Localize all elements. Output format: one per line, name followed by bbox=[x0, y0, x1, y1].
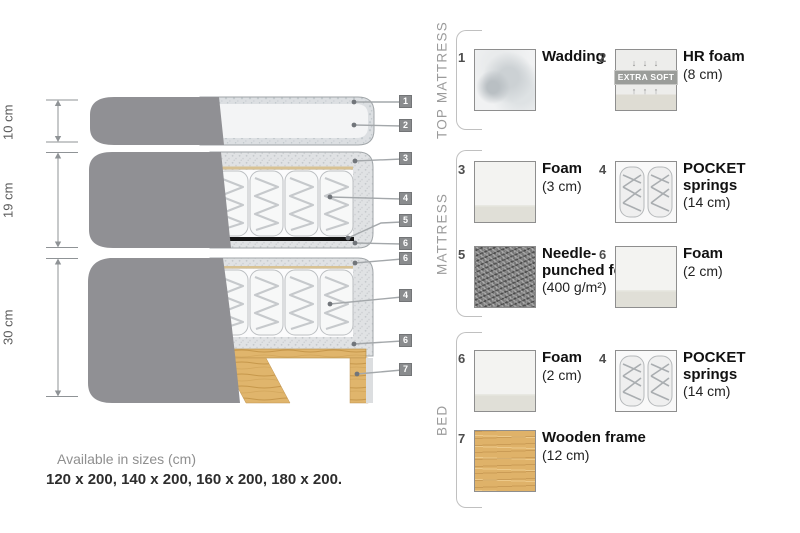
layer-tag-6b: 6 bbox=[399, 252, 412, 265]
legend-item-pocket-springs-bed: 4 POCKET springs (14 cm) bbox=[599, 350, 787, 412]
extra-soft-badge: EXTRA SOFT bbox=[614, 70, 679, 85]
available-sizes-list: 120 x 200, 140 x 200, 160 x 200, 180 x 2… bbox=[46, 471, 342, 488]
group-label-bed: BED bbox=[433, 332, 451, 508]
mattress-section bbox=[89, 152, 373, 248]
foam-swatch bbox=[474, 350, 536, 412]
pocket-springs-swatch bbox=[615, 350, 677, 412]
legend-item-name: HR foam bbox=[683, 49, 787, 66]
legend-item-size: (12 cm) bbox=[542, 448, 662, 463]
layer-tag-1: 1 bbox=[399, 95, 412, 108]
group-label-mattress: MATTRESS bbox=[433, 150, 451, 317]
legend-item-number: 5 bbox=[458, 246, 474, 262]
foam-swatch bbox=[615, 246, 677, 308]
legend-item-number: 4 bbox=[599, 350, 615, 366]
legend-item-name: POCKET springs bbox=[683, 161, 787, 194]
legend-item-name: Foam bbox=[683, 246, 787, 263]
top-mattress-section bbox=[90, 97, 374, 145]
arrows-down-icon: ↓ ↓ ↓ bbox=[632, 58, 661, 69]
bed-construction-infographic: 10 cm 19 cm 30 cm 1 2 3 4 5 6 6 4 6 7 Av… bbox=[0, 0, 800, 533]
legend-item-size: (2 cm) bbox=[683, 264, 787, 279]
bed-base-section bbox=[88, 258, 373, 403]
legend-item-number: 3 bbox=[458, 161, 474, 177]
dimension-label-10cm: 10 cm bbox=[0, 99, 16, 145]
legend-item-hr-foam: 2 ↓ ↓ ↓ EXTRA SOFT ↑ ↑ ↑ HR foam (8 cm) bbox=[599, 49, 787, 111]
layer-tag-4b: 4 bbox=[399, 289, 412, 302]
legend-item-number: 4 bbox=[599, 161, 615, 177]
legend-item-size: (14 cm) bbox=[683, 384, 787, 399]
dimension-arrows bbox=[46, 100, 78, 397]
legend-item-number: 2 bbox=[599, 49, 615, 65]
hr-foam-swatch: ↓ ↓ ↓ EXTRA SOFT ↑ ↑ ↑ bbox=[615, 49, 677, 111]
legend-item-size: (8 cm) bbox=[683, 67, 787, 82]
legend-item-size: (14 cm) bbox=[683, 195, 787, 210]
layer-tag-7: 7 bbox=[399, 363, 412, 376]
layer-tag-3: 3 bbox=[399, 152, 412, 165]
legend-item-name: POCKET springs bbox=[683, 350, 787, 383]
needle-punched-felt-swatch bbox=[474, 246, 536, 308]
arrows-up-icon: ↑ ↑ ↑ bbox=[632, 86, 661, 97]
legend-item-number: 7 bbox=[458, 430, 474, 446]
available-sizes-heading: Available in sizes (cm) bbox=[57, 451, 196, 467]
pocket-springs-icon bbox=[617, 163, 675, 221]
wooden-frame-swatch bbox=[474, 430, 536, 492]
legend-item-number: 6 bbox=[599, 246, 615, 262]
pocket-springs-icon bbox=[617, 352, 675, 410]
legend-item-name: Wooden frame bbox=[542, 430, 662, 447]
legend-item-foam-2cm: 6 Foam (2 cm) bbox=[599, 246, 787, 308]
layer-tag-6: 6 bbox=[399, 237, 412, 250]
group-label-top-mattress: TOP MATTRESS bbox=[433, 28, 451, 132]
foam-swatch bbox=[474, 161, 536, 223]
wadding-swatch bbox=[474, 49, 536, 111]
legend-item-number: 6 bbox=[458, 350, 474, 366]
layer-tag-5: 5 bbox=[399, 214, 412, 227]
layer-tag-6c: 6 bbox=[399, 334, 412, 347]
dimension-label-19cm: 19 cm bbox=[0, 177, 16, 223]
wooden-frame bbox=[216, 349, 373, 403]
layer-tag-2: 2 bbox=[399, 119, 412, 132]
dimension-label-30cm: 30 cm bbox=[0, 304, 16, 350]
layer-tag-4: 4 bbox=[399, 192, 412, 205]
pocket-springs-swatch bbox=[615, 161, 677, 223]
legend-item-number: 1 bbox=[458, 49, 474, 65]
legend-item-pocket-springs: 4 POCKET springs (14 cm) bbox=[599, 161, 787, 223]
legend-item-wooden-frame: 7 Wooden frame (12 cm) bbox=[458, 430, 662, 492]
